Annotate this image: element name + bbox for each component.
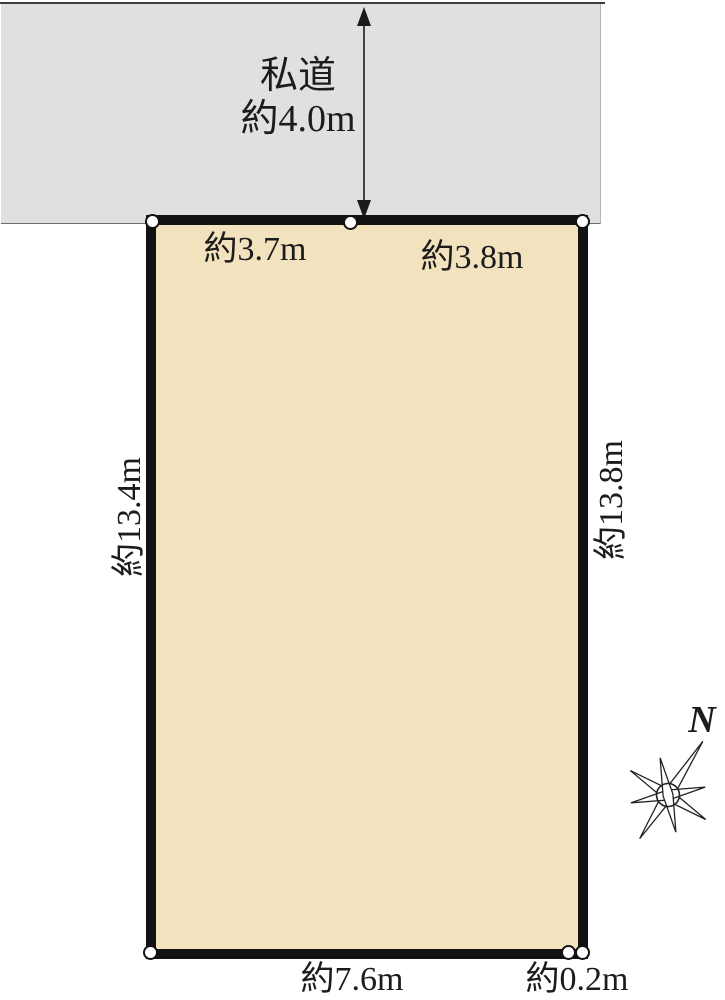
compass-north-label: N xyxy=(681,700,723,740)
vertex-marker-top-left xyxy=(145,214,160,229)
road-label: 私道 約4.0m xyxy=(178,55,418,141)
dimension-label-bottom-right: 約0.2m xyxy=(477,961,677,999)
arrowhead-up-icon xyxy=(357,7,371,26)
dimension-label-top-left: 約3.7m xyxy=(155,231,355,269)
dimension-label-right-side: 約13.8m xyxy=(593,400,631,600)
dimension-label-bottom: 約7.6m xyxy=(252,961,452,999)
vertex-marker-top-right xyxy=(575,214,590,229)
vertex-marker-bottom-right-corner xyxy=(575,945,590,960)
road-width-label: 約4.0m xyxy=(178,98,418,141)
road-name: 私道 xyxy=(178,55,418,98)
vertex-marker-bottom-right-inner xyxy=(561,945,576,960)
dimension-label-top-right: 約3.8m xyxy=(372,239,572,277)
vertex-marker-bottom-left xyxy=(143,945,158,960)
site-plan-diagram: 私道 約4.0m 約3.7m 約3.8m 約13.4m 約13.8m 約7.6m… xyxy=(0,0,725,1000)
vertex-marker-top-middle xyxy=(343,215,358,230)
land-plot xyxy=(146,215,588,959)
dimension-label-left-side: 約13.4m xyxy=(111,417,149,617)
